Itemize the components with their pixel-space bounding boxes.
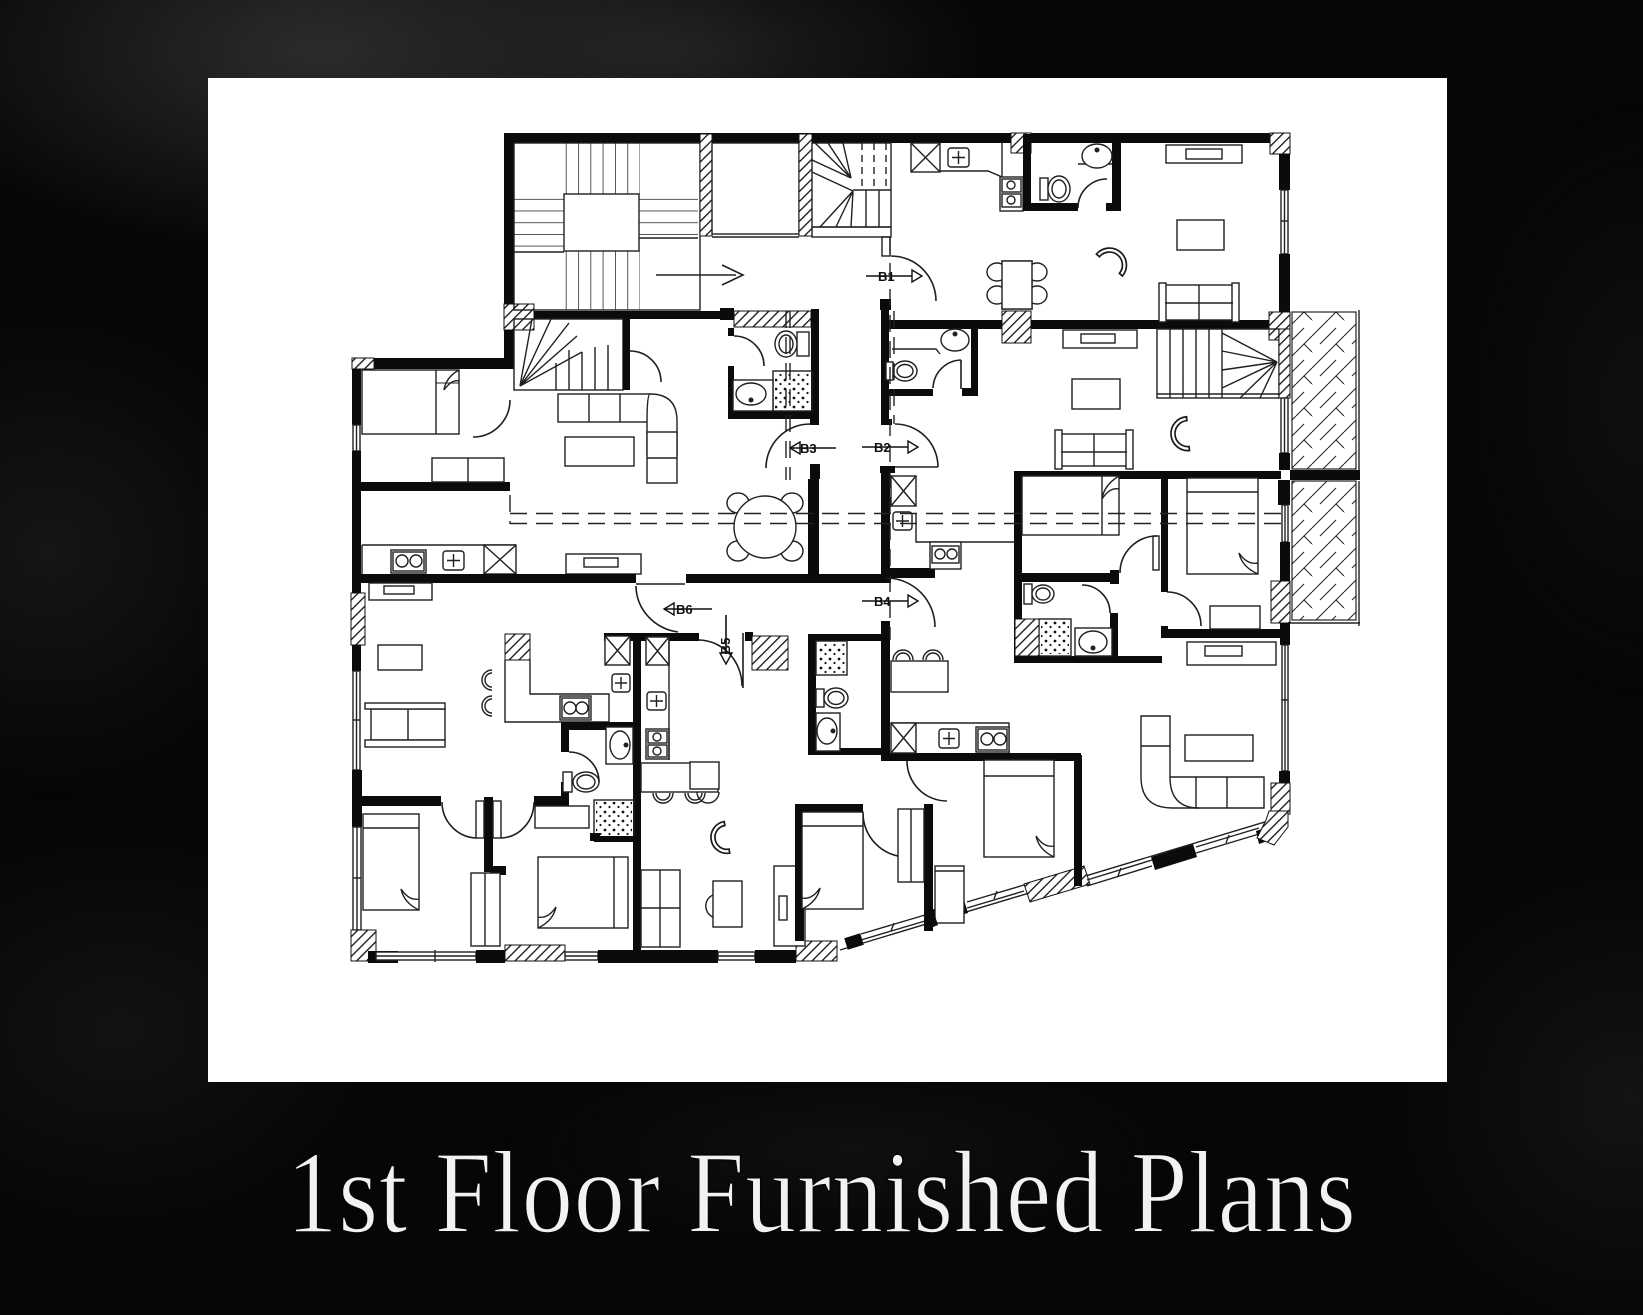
- svg-text:B5: B5: [718, 638, 733, 655]
- svg-text:B4: B4: [874, 594, 891, 609]
- svg-text:B6: B6: [676, 602, 693, 617]
- svg-text:B2: B2: [874, 440, 891, 455]
- svg-text:B1: B1: [878, 269, 895, 284]
- svg-text:B3: B3: [800, 441, 817, 456]
